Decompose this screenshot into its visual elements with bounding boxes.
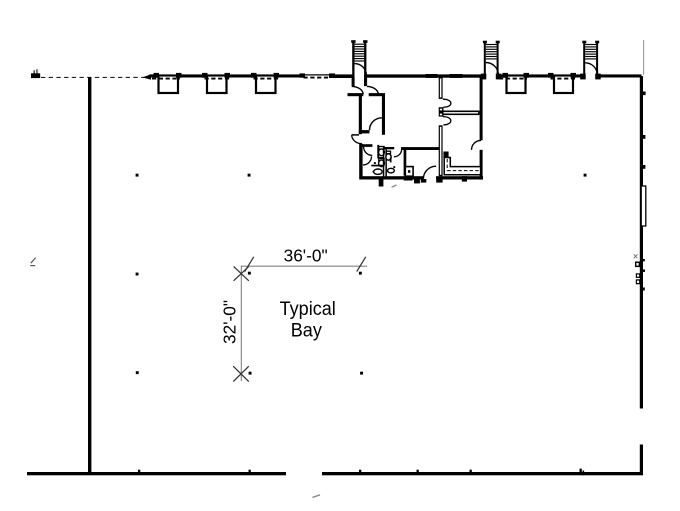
svg-text:Bay: Bay xyxy=(291,319,323,341)
svg-text:36'-0": 36'-0" xyxy=(284,246,328,266)
svg-text:32'-0": 32'-0" xyxy=(220,300,240,344)
svg-text:Typical: Typical xyxy=(280,297,336,319)
